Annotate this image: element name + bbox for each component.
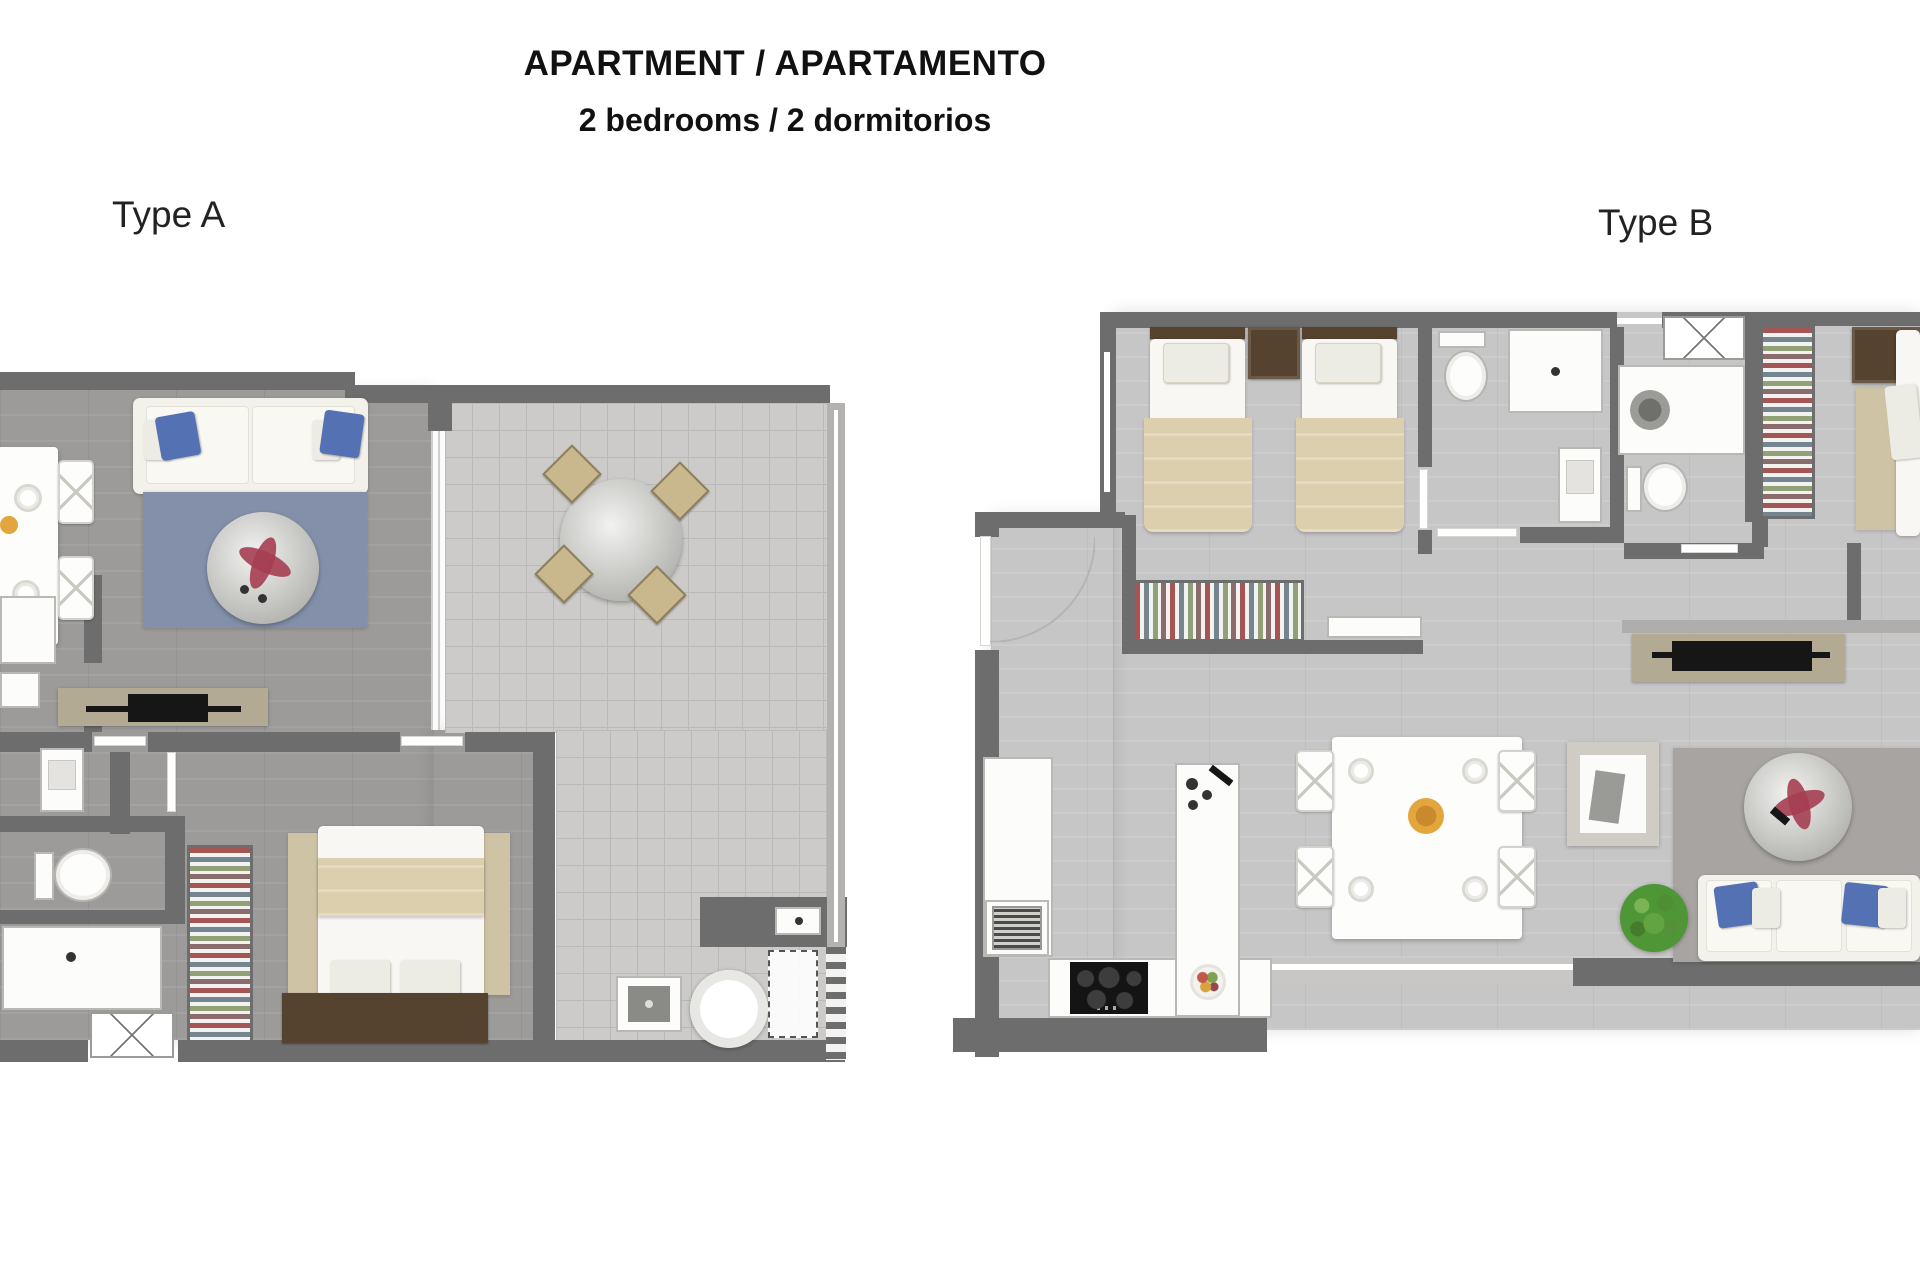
toilet-tank [1438,331,1486,348]
wall [700,897,847,947]
bed-blanket [1296,418,1404,532]
plan-b-label: Type B [1598,202,1713,244]
potted-plant [1620,884,1688,952]
floor-plan-sheet: APARTMENT / APARTAMENTO 2 bedrooms / 2 d… [0,0,1920,1280]
knife-block [1188,800,1198,810]
salad-plate [1190,964,1226,1000]
knife-block [1186,778,1198,790]
wall [533,732,555,1062]
wall [975,512,999,537]
dining-chair [1296,846,1334,908]
door-leaf [168,753,175,811]
appliance-space [768,950,818,1038]
plate [1462,758,1488,784]
wall [0,816,112,832]
wardrobe [1132,580,1304,642]
terrace-glass-door [431,431,440,730]
window-band [1267,958,1573,984]
toilet-bowl [54,848,112,902]
dining-chair [1498,750,1536,812]
wall [1847,543,1861,627]
wardrobe [187,845,253,1043]
sofa-cushion [1776,880,1842,952]
door-leaf [1438,529,1516,536]
entry-door-leaf [981,537,990,645]
bed-headboard [282,993,488,1043]
bed-blanket [318,858,484,916]
plan-a-label: Type A [112,194,225,236]
wall [953,1018,1267,1052]
wall [1573,958,1920,986]
wall [345,385,830,403]
wall [0,372,355,390]
nightstand [1248,327,1300,379]
fruit-bowl [1408,798,1444,834]
bed-pillow [400,960,460,996]
wall [428,385,452,431]
bed-headboard [1150,327,1245,339]
dining-chair [58,460,94,524]
toilet-tank [1626,466,1642,512]
knife-block [1202,790,1212,800]
dining-chair [1498,846,1536,908]
food-bowl [0,516,18,534]
sofa-pillow [1752,888,1780,928]
toilet-bowl [1642,462,1688,512]
sofa-pillow-blue [319,409,365,458]
door-leaf [95,737,145,745]
plate [1462,876,1488,902]
toilet-tank [34,852,54,900]
plate [14,484,42,512]
candle-decor [258,594,267,603]
dining-chair [1296,750,1334,812]
door-leaf [1682,545,1737,552]
shower-tray [1663,316,1745,360]
shower-drain [1551,367,1560,376]
half-wall [1622,620,1920,633]
bed-headboard [1302,327,1397,339]
hall-console [1327,616,1422,638]
wall [1752,517,1768,547]
page-title: APARTMENT / APARTAMENTO [180,44,1390,84]
tv-soundbar [1652,652,1830,658]
wall [1418,327,1432,467]
wall [0,910,167,924]
water-heater [690,970,768,1048]
door-leaf [402,737,462,745]
plate [1348,758,1374,784]
wall [148,732,400,752]
wardrobe [1760,325,1815,519]
bed-blanket [1144,418,1252,532]
wall [1520,527,1622,543]
sofa-pillow [1878,888,1906,928]
bed-pillow [330,960,390,996]
basin-drain [645,1000,653,1008]
sink-bowl [1630,390,1670,430]
wall [1122,640,1423,654]
bed-pillow [1315,343,1381,383]
entry-door-swing [990,537,1095,642]
wall [1745,317,1760,522]
window [1617,312,1662,328]
wall [1745,312,1920,326]
sink-basin [48,760,76,790]
plate [1348,876,1374,902]
cooktop [1070,962,1148,1014]
wall [0,1040,88,1062]
bed-pillow [1163,343,1229,383]
wall [110,816,185,832]
wall [165,832,185,924]
tv-soundbar [86,706,241,712]
shower [2,926,162,1010]
railing-glass [834,410,838,942]
stairs [826,947,846,1060]
wall [1418,530,1432,554]
fixture [0,672,40,708]
washer-drum [992,906,1042,950]
ac-knob [795,917,803,925]
sink-basin [1566,460,1594,494]
door-leaf [1420,470,1427,528]
toilet-bowl [1444,350,1488,402]
vanity-unit [0,596,56,664]
dining-chair [58,556,94,620]
window-glass [1104,352,1110,492]
page-subtitle: 2 bedrooms / 2 dormitorios [180,102,1390,139]
sofa-pillow-blue [154,411,201,461]
shower-drain [66,952,76,962]
candle-decor [240,585,249,594]
shower-tray [90,1012,174,1058]
